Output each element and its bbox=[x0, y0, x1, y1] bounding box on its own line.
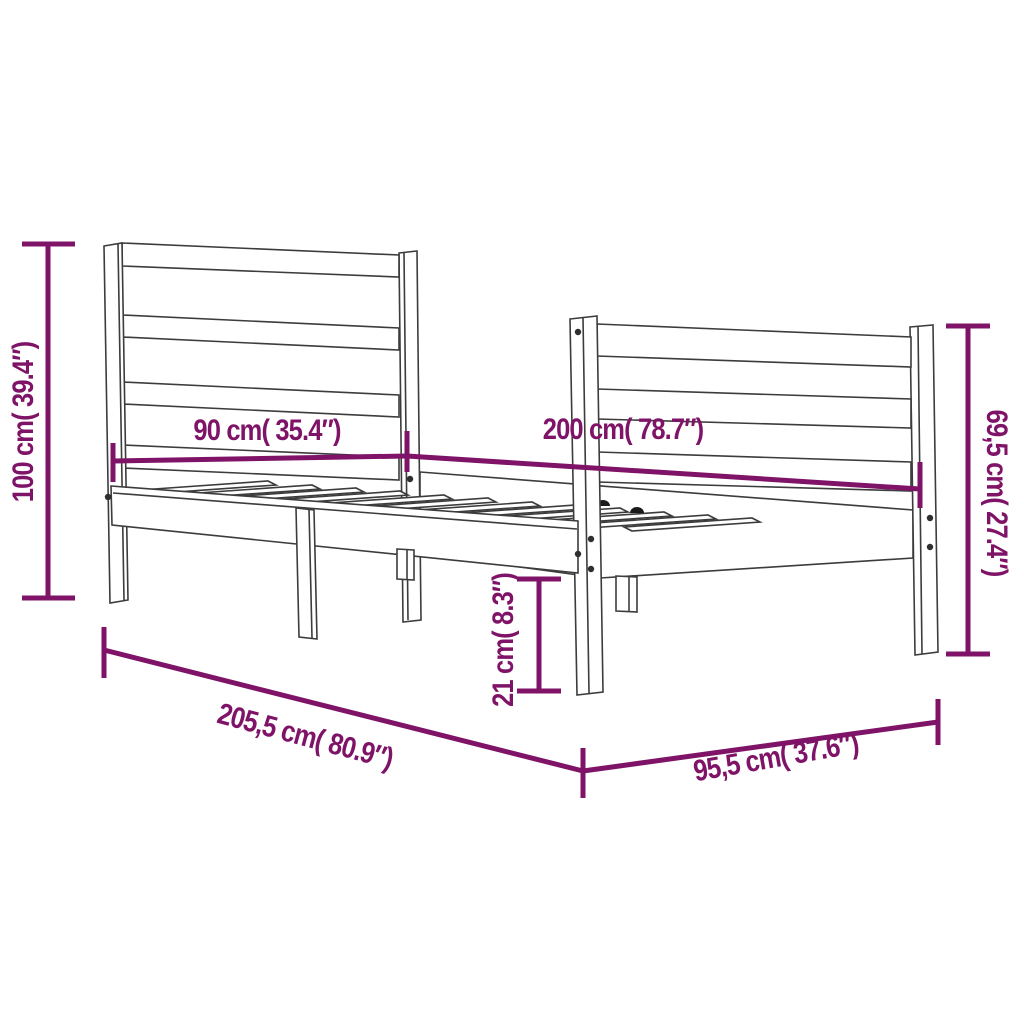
headboard-board bbox=[122, 315, 399, 350]
bed-frame-line-drawing bbox=[0, 0, 1024, 1024]
dimension-label-bed-length: 200 cm( 78.7″) bbox=[543, 413, 704, 447]
front-middle-leg bbox=[397, 549, 414, 580]
dimension-label-footboard-height: 69,5 cm( 27.4″) bbox=[979, 410, 1013, 577]
front-leg bbox=[296, 508, 317, 639]
dimension-label-headboard-width: 90 cm( 35.4″) bbox=[193, 414, 340, 448]
headboard-board bbox=[122, 382, 399, 417]
dimension-label-rail-height: 21 cm( 8.3″) bbox=[487, 573, 521, 707]
rear-middle-leg bbox=[616, 576, 637, 612]
headboard-board bbox=[122, 243, 399, 277]
headboard-front-post bbox=[104, 243, 128, 603]
product-dimension-diagram: 100 cm( 39.4″) 90 cm( 35.4″) 200 cm( 78.… bbox=[0, 0, 1024, 1024]
dimension-label-headboard-height: 100 cm( 39.4″) bbox=[7, 342, 41, 503]
footboard-board bbox=[597, 324, 911, 367]
